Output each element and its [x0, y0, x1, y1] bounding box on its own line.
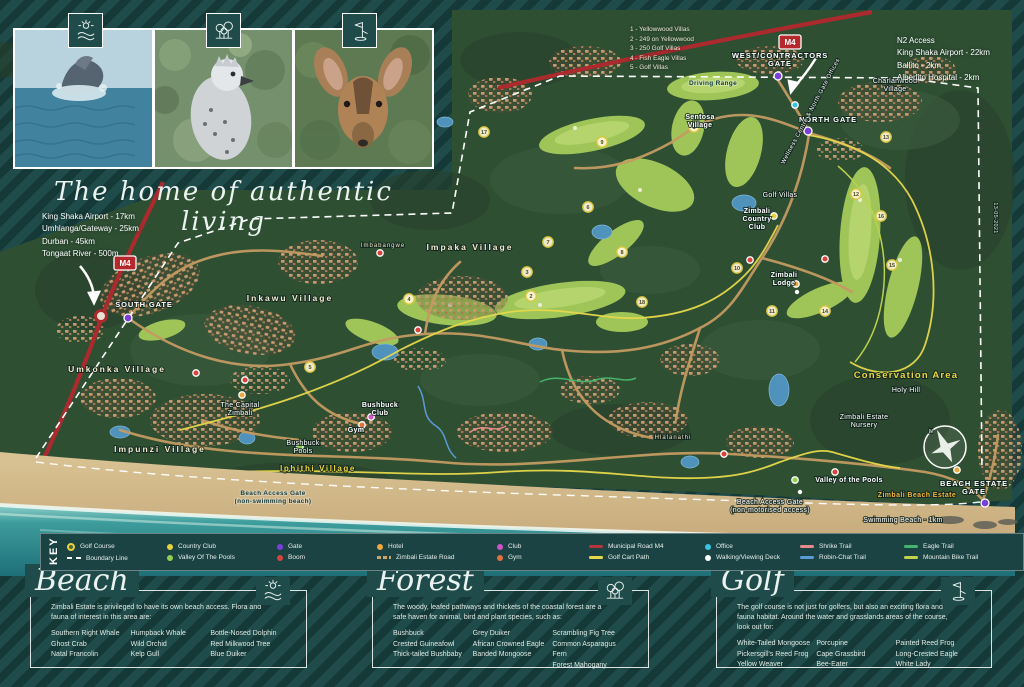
section-beach: BeachZimbali Estate is privileged to hav…	[30, 590, 307, 668]
map-label: Conservation Area	[854, 370, 959, 381]
map-label: Umkonka Village	[68, 364, 166, 374]
species-item: Cape Grassbird	[816, 650, 895, 661]
map-label: (non-motorised access)	[730, 507, 810, 514]
section-intro: Zimbali Estate is privileged to have its…	[51, 603, 271, 623]
key-item: Zimbali Estate Road	[377, 554, 497, 561]
boom-marker	[822, 256, 828, 262]
species-item: Grey Duiker	[473, 629, 553, 640]
key-swatch-eagle-trail	[904, 545, 918, 548]
villa-index-line: 4 - Fish Eagle Villas	[630, 54, 694, 64]
key-column: Golf CourseBoundary Line	[67, 543, 167, 562]
boom-marker	[242, 377, 248, 383]
key-swatch-club	[497, 544, 503, 550]
photo-gallery: The home of authentic living	[13, 13, 434, 237]
beach-icon	[68, 13, 103, 48]
species-item: Long-Crested Eagle	[896, 650, 975, 661]
valley-marker	[792, 477, 798, 483]
map-label: Pools	[293, 448, 312, 455]
species-item: Bottle-Nosed Dolphin	[210, 629, 290, 640]
species-item: Pickersgill's Reed Frog	[737, 650, 816, 661]
key-item: Eagle Trail	[904, 543, 1016, 550]
species-columns: Southern Right WhaleGhost CrabNatal Fran…	[51, 629, 290, 661]
section-forest: ForestThe woody, leafed pathways and thi…	[372, 590, 649, 668]
eagle-photo	[155, 30, 292, 167]
key-label: Boom	[288, 554, 305, 561]
species-columns: White-Tailed MongoosePickersgill's Reed …	[737, 639, 975, 671]
key-label: Municipal Road M4	[608, 543, 664, 550]
key-item: Municipal Road M4	[589, 543, 705, 550]
duiker-photo	[295, 30, 432, 167]
hole-number: 14	[822, 309, 829, 315]
species-item: Wild Orchid	[131, 640, 211, 651]
key-column: HotelZimbali Estate Road	[377, 543, 497, 562]
key-swatch-valley-of-the-pools	[167, 555, 173, 561]
key-item: Valley Of The Pools	[167, 554, 277, 561]
key-item: Hotel	[377, 543, 497, 550]
map-label: Inkawu Village	[247, 293, 333, 303]
villa-index-line: 5 - Golf Villas	[630, 63, 694, 73]
map-label: Village	[884, 86, 907, 93]
species-item: Bushbuck	[393, 629, 473, 640]
species-item: Yellow Weaver	[737, 660, 816, 671]
map-label: Country	[743, 216, 772, 223]
map-label: Zimbali	[744, 208, 771, 215]
boom-marker	[721, 451, 727, 457]
forest-icon	[598, 577, 632, 605]
map-label: Village	[688, 122, 713, 129]
map-label: Valley of the Pools	[815, 477, 883, 484]
species-column: Scrambling Fig TreeCommon Asparagus Fern…	[552, 629, 632, 671]
hole-number: 8	[620, 250, 623, 256]
species-column: Painted Reed FrogLong-Crested EagleWhite…	[896, 639, 975, 671]
species-item: Humpback Whale	[131, 629, 211, 640]
golf-icon	[941, 577, 975, 605]
species-item: Kelp Gull	[131, 650, 211, 661]
key-swatch-shrike-trail	[800, 545, 814, 548]
map-label: Zimbali Beach Estate	[878, 492, 956, 499]
map-label: Bushbuck	[286, 440, 319, 447]
hotel-marker	[239, 392, 245, 398]
hole-number: 7	[546, 240, 549, 246]
key-item: Office	[705, 543, 800, 550]
map-label: Beach Access Gate	[737, 499, 803, 506]
species-item: Crested Guineafowl	[393, 640, 473, 651]
map-label: Imbabangwe	[361, 243, 405, 249]
key-swatch-walking-viewing-deck	[705, 555, 711, 561]
map-label: Club	[372, 410, 389, 417]
map-label: Iphithi Village	[280, 464, 356, 473]
species-column: BushbuckCrested GuineafowlThick-tailed B…	[393, 629, 473, 671]
key-column: Shrike TrailRobin-Chat Trail	[800, 543, 904, 562]
key-label: Golf Cart Path	[608, 554, 649, 561]
key-column: Municipal Road M4Golf Cart Path	[589, 543, 705, 562]
tagline: The home of authentic living	[13, 177, 434, 237]
golf-icon	[342, 13, 377, 48]
species-column: White-Tailed MongoosePickersgill's Reed …	[737, 639, 816, 671]
country-club-marker	[771, 213, 777, 219]
map-key: KEY Golf CourseBoundary LineCountry Club…	[40, 533, 1024, 571]
n2-access-title: N2 Access	[897, 35, 990, 47]
species-item: Painted Reed Frog	[896, 639, 975, 650]
villa-index-line: 3 - 250 Golf Villas	[630, 44, 694, 54]
key-item: Walking/Viewing Deck	[705, 554, 800, 561]
office-marker	[792, 102, 798, 108]
key-label: Club	[508, 543, 521, 550]
key-swatch-robin-chat-trail	[800, 556, 814, 559]
key-swatch-mountain-bike-trail	[904, 556, 918, 559]
map-label: 13-05-2021	[992, 202, 998, 233]
gate-marker	[124, 314, 132, 322]
key-label: Gate	[288, 543, 302, 550]
species-item: Southern Right Whale	[51, 629, 131, 640]
key-swatch-golf-cart-path	[589, 556, 603, 559]
species-item: Banded Mongoose	[473, 650, 553, 661]
key-item: Mountain Bike Trail	[904, 554, 1016, 561]
hole-number: 15	[889, 263, 895, 269]
key-item: Boom	[277, 554, 377, 561]
distance-line: Ballito - 2km	[897, 60, 990, 72]
boom-marker	[377, 250, 383, 256]
boom-marker	[415, 327, 421, 333]
map-label: (non-swimming beach)	[235, 498, 312, 505]
beach-icon	[256, 577, 290, 605]
species-item: Red Milkwood Tree	[210, 640, 290, 651]
species-item: White Lady	[896, 660, 975, 671]
map-label: Gym	[348, 427, 364, 434]
map-label: Zimbali	[228, 410, 253, 417]
key-swatch-country-club	[167, 544, 173, 550]
estate-map-poster: M4M4 123456789101112131415161718 SOUTH G…	[0, 0, 1024, 687]
key-item: Shrike Trail	[800, 543, 904, 550]
key-label: Eagle Trail	[923, 543, 954, 550]
species-item: Ghost Crab	[51, 640, 131, 651]
key-label: Mountain Bike Trail	[923, 554, 978, 561]
species-item: White-Tailed Mongoose	[737, 639, 816, 650]
m4-badge-label: M4	[784, 38, 796, 47]
map-label: Bushbuck	[362, 402, 398, 409]
key-swatch-boom	[277, 555, 283, 561]
map-label: Golf Villas	[763, 192, 798, 199]
hole-number: 5	[308, 365, 311, 371]
key-label: Gym	[508, 554, 522, 561]
map-label: Sentosa	[685, 114, 714, 121]
distance-line: Durban - 45km	[42, 236, 139, 248]
species-column: Humpback WhaleWild OrchidKelp Gull	[131, 629, 211, 661]
species-item: Blue Duiker	[210, 650, 290, 661]
map-label: GATE	[768, 59, 792, 68]
hole-number: 16	[878, 214, 884, 220]
species-item: Porcupine	[816, 639, 895, 650]
key-title: KEY	[48, 539, 60, 565]
key-swatch-office	[705, 544, 711, 550]
boom-marker	[747, 257, 753, 263]
key-swatch-hotel	[377, 544, 383, 550]
deck-marker	[795, 290, 799, 294]
key-swatch-zimbali-estate-road	[377, 556, 391, 559]
villa-index-line: 2 - 249 on Yellowwood	[630, 35, 694, 45]
species-column: Bottle-Nosed DolphinRed Milkwood TreeBlu…	[210, 629, 290, 661]
key-swatch-boundary-line	[67, 557, 81, 559]
key-column: GateBoom	[277, 543, 377, 562]
deck-marker	[798, 490, 802, 494]
map-label: Holy Hill	[892, 387, 921, 394]
species-item: Bee-Eater	[816, 660, 895, 671]
key-swatch-gym	[497, 555, 503, 561]
key-label: Valley Of The Pools	[178, 554, 235, 561]
villa-index: 1 - Yellowwood Villas2 - 249 on Yellowwo…	[630, 25, 694, 73]
key-item: Club	[497, 543, 589, 550]
map-label: N	[929, 429, 933, 435]
gate-marker	[981, 499, 989, 507]
hole-number: 2	[529, 294, 532, 300]
map-label: Impunzi Village	[114, 444, 206, 454]
map-label: Driving Range	[689, 80, 737, 87]
hole-number: 12	[853, 192, 859, 198]
key-column: Country ClubValley Of The Pools	[167, 543, 277, 562]
hole-number: 9	[600, 140, 603, 146]
map-label: Zimbali	[771, 272, 798, 279]
hole-number: 10	[734, 266, 740, 272]
species-item: Scrambling Fig Tree	[552, 629, 632, 640]
key-item: Golf Cart Path	[589, 554, 705, 561]
species-item: African Crowned Eagle	[473, 640, 553, 651]
boom-marker	[193, 370, 199, 376]
section-intro: The golf course is not just for golfers,…	[737, 603, 956, 633]
key-item: Gym	[497, 554, 589, 561]
key-column: Eagle TrailMountain Bike Trail	[904, 543, 1016, 562]
species-item: Thick-tailed Bushbaby	[393, 650, 473, 661]
key-item: Country Club	[167, 543, 277, 550]
photo-strip	[13, 28, 434, 169]
key-column: OfficeWalking/Viewing Deck	[705, 543, 800, 562]
key-label: Office	[716, 543, 733, 550]
map-label: Club	[749, 224, 766, 231]
hotel-marker	[954, 467, 960, 473]
section-golf: GolfThe golf course is not just for golf…	[716, 590, 992, 668]
key-label: Robin-Chat Trail	[819, 554, 866, 561]
key-swatch-golf-course	[67, 543, 75, 551]
key-item: Golf Course	[67, 543, 167, 551]
key-swatch-gate	[277, 544, 283, 550]
species-item: Common Asparagus Fern	[552, 640, 632, 661]
key-label: Walking/Viewing Deck	[716, 554, 780, 561]
map-label: Hlalanathi	[655, 435, 692, 441]
forest-icon	[206, 13, 241, 48]
section-intro: The woody, leafed pathways and thickets …	[393, 603, 613, 623]
hole-number: 18	[639, 300, 645, 306]
key-swatch-municipal-road-m4	[589, 545, 603, 548]
key-label: Golf Course	[80, 543, 115, 550]
gate-marker	[774, 72, 782, 80]
hole-number: 13	[883, 135, 889, 141]
key-label: Hotel	[388, 543, 403, 550]
map-label: Nursery	[851, 422, 878, 429]
hole-number: 6	[586, 205, 589, 211]
map-label: The Capital	[220, 402, 259, 409]
distance-line: Tongaat River - 500m	[42, 248, 139, 260]
key-items: Golf CourseBoundary LineCountry ClubVall…	[67, 543, 1023, 562]
map-label: Impaka Village	[427, 242, 514, 252]
map-label: Swimming Beach - 1km	[863, 517, 943, 524]
hole-number: 3	[525, 270, 528, 276]
whale-photo	[15, 30, 152, 167]
key-item: Robin-Chat Trail	[800, 554, 904, 561]
n2-access-info: N2 Access King Shaka Airport - 22kmBalli…	[897, 35, 990, 85]
map-label: Beach Access Gate	[240, 490, 305, 497]
species-column: PorcupineCape GrassbirdBee-Eater	[816, 639, 895, 671]
villa-index-line: 1 - Yellowwood Villas	[630, 25, 694, 35]
species-column: Grey DuikerAfrican Crowned EagleBanded M…	[473, 629, 553, 671]
species-item: Forest Mahogany	[552, 661, 632, 672]
key-column: ClubGym	[497, 543, 589, 562]
key-label: Boundary Line	[86, 555, 128, 562]
species-item: Natal Francolin	[51, 650, 131, 661]
hole-number: 11	[769, 309, 775, 315]
boom-marker	[832, 469, 838, 475]
key-label: Zimbali Estate Road	[396, 554, 455, 561]
key-item: Boundary Line	[67, 555, 167, 562]
map-label: GATE	[962, 487, 986, 496]
distance-line: Alberlito Hospital - 2km	[897, 72, 990, 84]
species-column: Southern Right WhaleGhost CrabNatal Fran…	[51, 629, 131, 661]
map-label: Lodge	[773, 280, 796, 287]
key-label: Shrike Trail	[819, 543, 852, 550]
hole-number: 17	[481, 130, 487, 136]
distance-line: King Shaka Airport - 22km	[897, 47, 990, 59]
species-columns: BushbuckCrested GuineafowlThick-tailed B…	[393, 629, 632, 671]
key-item: Gate	[277, 543, 377, 550]
map-label: Zimbali Estate	[840, 414, 889, 421]
key-label: Country Club	[178, 543, 216, 550]
map-label: SOUTH GATE	[115, 300, 173, 309]
